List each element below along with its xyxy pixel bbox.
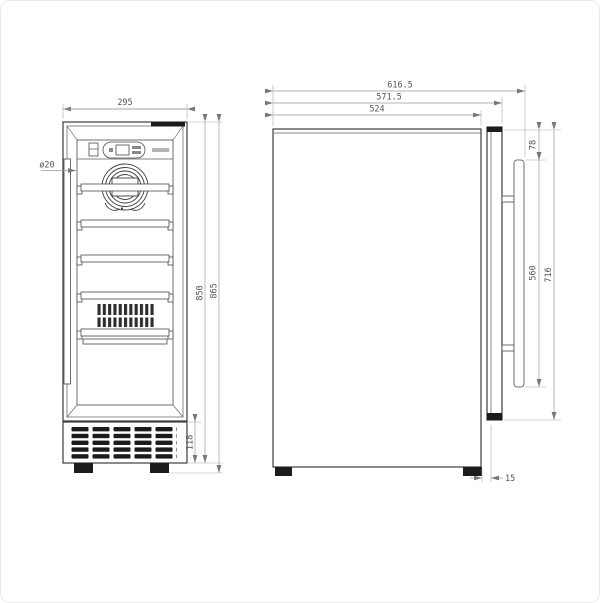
dim-depth-total-label: 616.5 xyxy=(387,81,413,91)
top-edge-trim xyxy=(151,122,185,127)
dim-body-height: 850 xyxy=(196,122,206,463)
interior-light-box xyxy=(89,143,98,156)
dim-width: 295 xyxy=(63,98,187,119)
dim-depth-with-door: 571.5 xyxy=(273,93,502,104)
sensor-dot xyxy=(121,207,123,209)
dim-total-height: 865 xyxy=(210,122,220,473)
dim-handle-top-offset: 78 xyxy=(529,130,540,160)
dim-door-height: 716 xyxy=(544,130,554,420)
side-foot-back xyxy=(275,467,292,476)
dim-body-height-label: 850 xyxy=(196,285,206,300)
front-foot-right xyxy=(150,463,169,473)
door-top-cap xyxy=(487,127,502,132)
handle-standoff-top xyxy=(502,196,514,202)
front-foot-left xyxy=(74,463,93,473)
dim-handle-height: 560 xyxy=(529,160,540,387)
side-view: 616.5 571.5 524 78 560 716 xyxy=(273,81,561,485)
dim-depth-total: 616.5 xyxy=(273,81,525,92)
temperature-display xyxy=(116,145,129,155)
cabinet-body xyxy=(273,129,481,467)
dim-total-height-label: 865 xyxy=(210,283,220,298)
dim-handle-top-offset-label: 78 xyxy=(529,140,539,150)
side-foot-front xyxy=(463,467,482,476)
dim-handle-height-label: 560 xyxy=(529,265,539,280)
evaporator-fins-upper xyxy=(98,304,155,315)
dim-hole-diameter-label: ø20 xyxy=(39,161,54,171)
handle-bar xyxy=(514,160,524,387)
door-panel xyxy=(487,127,502,420)
door-bottom-cap xyxy=(487,413,502,420)
set-button-icon xyxy=(109,148,113,152)
technical-drawing-sheet: 295 ø20 118 850 865 xyxy=(0,0,600,603)
handle-standoff-bottom xyxy=(502,345,514,351)
dim-depth-cabinet: 524 xyxy=(273,105,481,116)
dim-depth-cabinet-label: 524 xyxy=(369,105,384,115)
dim-door-height-label: 716 xyxy=(544,267,554,282)
evaporator-fins-lower xyxy=(98,318,155,328)
down-button-icon xyxy=(132,151,141,154)
front-view: 295 ø20 118 850 865 xyxy=(39,98,223,473)
vent-grille xyxy=(63,422,187,463)
hinge-tube xyxy=(64,159,71,384)
door-handle xyxy=(502,160,524,387)
brand-mark xyxy=(152,148,169,152)
dim-depth-with-door-label: 571.5 xyxy=(376,93,402,103)
dim-bottom-gap-label: 15 xyxy=(505,474,515,484)
technical-drawing: 295 ø20 118 850 865 xyxy=(1,1,599,602)
up-button-icon xyxy=(132,146,141,149)
dim-width-label: 295 xyxy=(117,98,132,108)
dim-vent-height-label: 118 xyxy=(186,435,196,450)
